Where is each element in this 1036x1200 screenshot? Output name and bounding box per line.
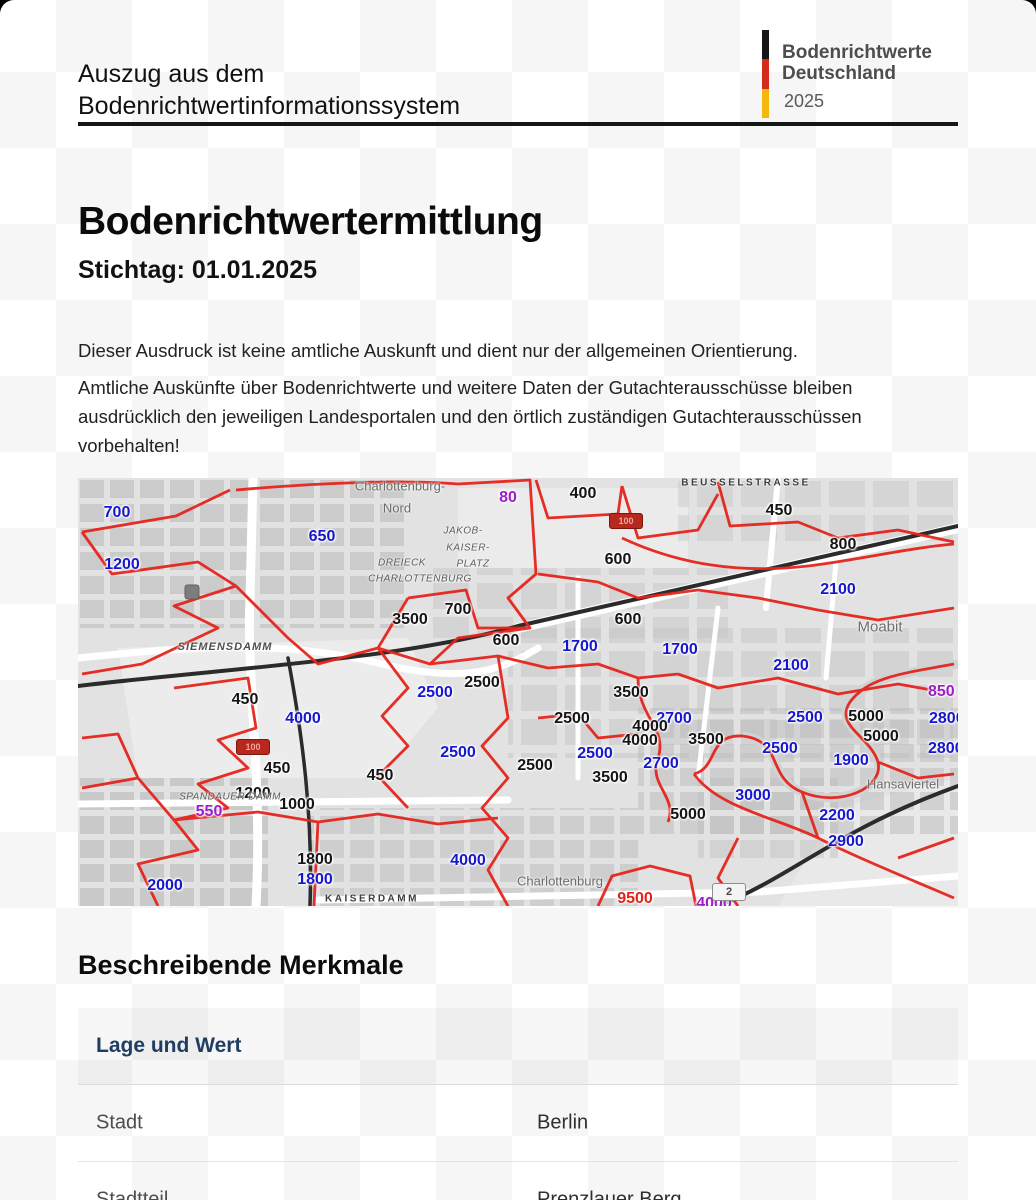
header-title-line1: Auszug aus dem (78, 58, 460, 90)
map-value-label: 80 (499, 489, 517, 507)
map-place-label: Charlottenburg- (355, 479, 445, 494)
map-value-label: 2500 (440, 744, 476, 762)
map-place-label: KAISERDAMM (325, 894, 419, 905)
map-value-label: 3500 (592, 769, 628, 787)
map-value-label: 3500 (688, 731, 724, 749)
map-place-label: SPANDAUER DAMM (179, 792, 281, 803)
map-place-label: PLATZ (457, 559, 490, 570)
map-value-label: 850 (928, 683, 955, 701)
map-value-label: 1800 (297, 871, 333, 889)
logo-line2: Deutschland (782, 63, 932, 84)
map-value-label: 4000 (285, 710, 321, 728)
table-row: StadtteilPrenzlauer Berg (78, 1162, 958, 1200)
map-value-label: 2100 (820, 581, 856, 599)
flag-gold-segment (762, 89, 769, 118)
valuation-date: Stichtag: 01.01.2025 (78, 256, 317, 285)
map-place-label: SIEMENSDAMM (178, 641, 273, 653)
flag-red-segment (762, 59, 769, 88)
map-value-label: 5000 (848, 708, 884, 726)
map-place-label: Nord (383, 501, 411, 516)
german-flag-bar (762, 30, 769, 118)
map-value-label: 2500 (787, 709, 823, 727)
section-heading: Beschreibende Merkmale (78, 950, 404, 981)
map-place-label: JAKOB- (443, 526, 482, 537)
row-value: Prenzlauer Berg (537, 1189, 682, 1200)
map-value-label: 4000 (622, 732, 658, 750)
map-place-label: Charlottenburg (517, 874, 603, 889)
map-value-label: 2500 (417, 684, 453, 702)
map-value-label: 4000 (450, 852, 486, 870)
map-value-label: 1800 (297, 851, 333, 869)
map-value-label: 2500 (464, 674, 500, 692)
road-number-badge: 100 (236, 739, 270, 755)
attribute-table: StadtBerlinStadtteilPrenzlauer Berg (78, 1085, 958, 1200)
map-value-label: 600 (605, 551, 632, 569)
map-value-label: 5000 (863, 728, 899, 746)
map-value-label: 1700 (562, 638, 598, 656)
land-value-map: 7001200650210017001700210025002500250027… (78, 478, 958, 906)
road-number-badge: 100 (609, 513, 643, 529)
map-value-label: 2500 (554, 710, 590, 728)
page-header-title: Auszug aus dem Bodenrichtwertinformation… (78, 58, 460, 122)
logo-line1: Bodenrichtwerte (782, 42, 932, 63)
map-value-label: 1700 (662, 641, 698, 659)
group-label: Lage und Wert (96, 1034, 241, 1058)
map-place-label: DREIECK (378, 558, 426, 569)
map-value-label: 800 (830, 536, 857, 554)
map-value-label: 2800 (929, 710, 958, 728)
map-value-label: 3000 (735, 787, 771, 805)
group-header-lage-und-wert: Lage und Wert (78, 1008, 958, 1085)
map-value-label: 1000 (279, 796, 315, 814)
map-value-label: 550 (196, 803, 223, 821)
map-value-label: 450 (232, 691, 259, 709)
map-value-label: 2900 (828, 833, 864, 851)
row-label: Stadt (96, 1112, 143, 1135)
map-value-label: 3500 (392, 611, 428, 629)
road-number-badge: 2 (712, 883, 746, 901)
map-value-label: 5000 (670, 806, 706, 824)
flag-black-segment (762, 30, 769, 59)
row-label: Stadtteil (96, 1189, 168, 1200)
map-value-label: 450 (766, 502, 793, 520)
map-value-label: 2500 (577, 745, 613, 763)
map-value-label: 2500 (762, 740, 798, 758)
map-value-label: 700 (104, 504, 131, 522)
disclaimer-paragraph-2: Amtliche Auskünfte über Bodenrichtwerte … (78, 373, 960, 460)
map-value-label: 450 (367, 767, 394, 785)
page-title: Bodenrichtwertermittlung (78, 200, 543, 244)
header-divider-rule (78, 122, 958, 126)
map-value-label: 2700 (643, 755, 679, 773)
row-value: Berlin (537, 1112, 588, 1135)
map-value-label: 400 (570, 485, 597, 503)
map-place-label: BEUSSELSTRASSE (681, 478, 810, 489)
map-value-label: 600 (615, 611, 642, 629)
map-value-label: 2200 (819, 807, 855, 825)
logo-wordmark: Bodenrichtwerte Deutschland (782, 42, 932, 84)
map-value-label: 700 (445, 601, 472, 619)
map-value-label: 9500 (617, 890, 653, 906)
map-place-label: CHARLOTTENBURG (368, 574, 472, 585)
map-value-label: 2800 (928, 740, 958, 758)
map-value-label: 1900 (833, 752, 869, 770)
document-page: Auszug aus dem Bodenrichtwertinformation… (0, 0, 1036, 1200)
station-icon (185, 585, 200, 600)
table-row: StadtBerlin (78, 1085, 958, 1162)
disclaimer-paragraph-1: Dieser Ausdruck ist keine amtliche Ausku… (78, 336, 960, 365)
map-place-label: KAISER- (446, 543, 490, 554)
map-value-label: 2100 (773, 657, 809, 675)
map-place-label: Hansaviertel (867, 777, 939, 792)
map-value-label: 2000 (147, 877, 183, 895)
map-value-label: 3500 (613, 684, 649, 702)
logo-year: 2025 (784, 91, 824, 112)
map-value-label: 600 (493, 632, 520, 650)
header-title-line2: Bodenrichtwertinformationssystem (78, 90, 460, 122)
map-value-label: 2500 (517, 757, 553, 775)
map-image (78, 478, 958, 906)
map-value-label: 1200 (104, 556, 140, 574)
map-value-label: 450 (264, 760, 291, 778)
map-place-label: Moabit (857, 619, 902, 636)
map-value-label: 650 (309, 528, 336, 546)
